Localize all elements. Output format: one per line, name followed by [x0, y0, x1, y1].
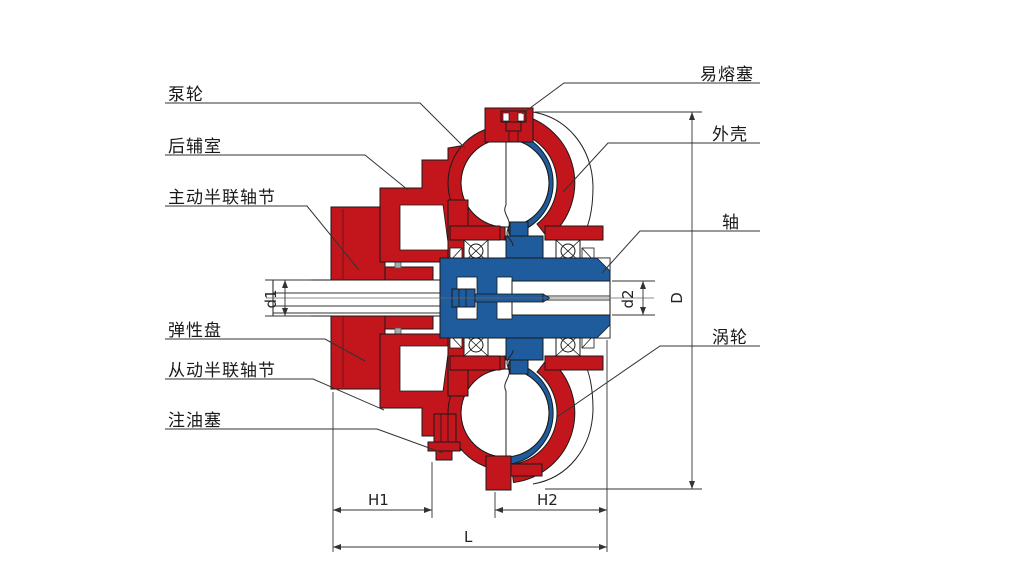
dim-L: L: [464, 528, 472, 546]
label-rear-chamber: 后辅室: [168, 132, 222, 157]
dim-d1: d1: [262, 282, 280, 316]
fusible-plug: [485, 108, 533, 142]
label-pump-wheel: 泵轮: [168, 80, 204, 105]
dim-d2: d2: [619, 282, 637, 316]
label-shaft: 轴: [722, 208, 740, 233]
label-housing: 外壳: [712, 120, 748, 145]
label-oil-plug: 注油塞: [168, 406, 222, 431]
label-driven-coupling: 从动半联轴节: [168, 356, 276, 381]
label-elastic-disc: 弹性盘: [168, 316, 222, 341]
dim-H2: H2: [537, 491, 558, 509]
dim-H1: H1: [368, 491, 389, 509]
dim-D: D: [668, 281, 686, 315]
coupling-drawing: [0, 0, 1013, 580]
label-driving-coupling: 主动半联轴节: [168, 183, 276, 208]
fluid-coupling-diagram: 泵轮 后辅室 主动半联轴节 弹性盘 从动半联轴节 注油塞 易熔塞 外壳 轴 涡轮…: [0, 0, 1013, 580]
label-turbine: 涡轮: [712, 323, 748, 348]
label-fusible-plug: 易熔塞: [700, 60, 754, 85]
